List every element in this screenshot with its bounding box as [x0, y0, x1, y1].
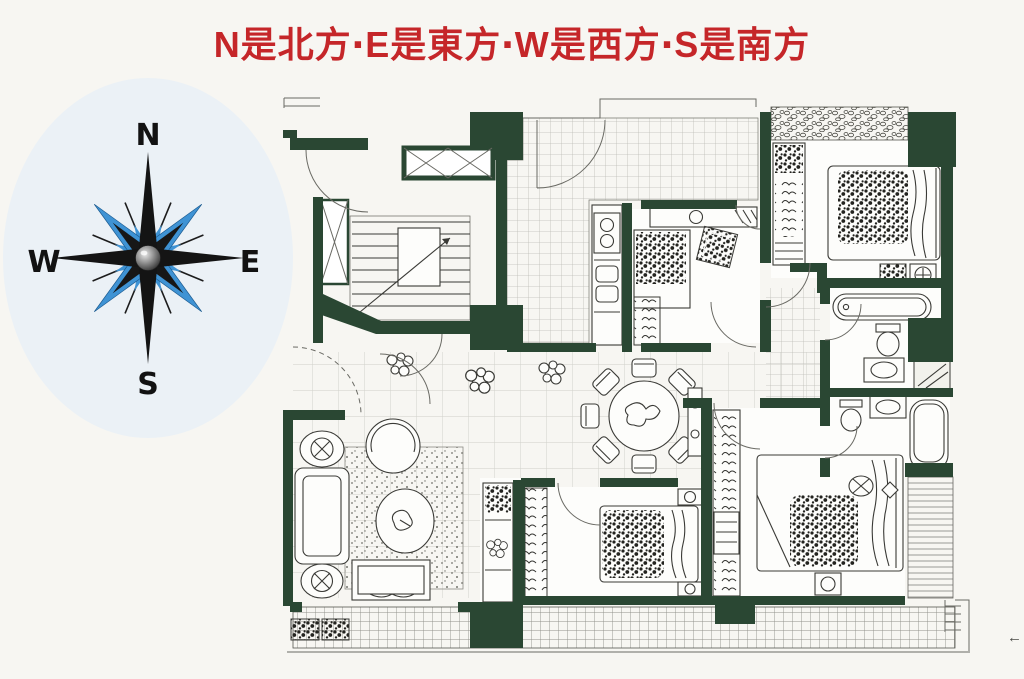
bed-blanket [790, 495, 858, 567]
wardrobe [634, 297, 660, 345]
stair-landing [398, 228, 440, 286]
hanger-rail [714, 412, 739, 510]
kitchen [592, 205, 622, 345]
compass-label-east: E [240, 245, 261, 280]
nightstand [815, 573, 841, 595]
compass-hub-highlight [141, 251, 148, 256]
coffee-table [376, 489, 434, 553]
toilet-tank [876, 324, 900, 332]
entry-closet [404, 148, 493, 178]
work-counter [650, 207, 757, 227]
plant-on-shelf [775, 145, 803, 173]
compass-label-south: S [137, 367, 159, 402]
compass-hub [136, 246, 161, 271]
bathtub-vertical [910, 400, 948, 470]
screenshot-root: { "title": { "text": "N是北方‧E是東方‧W是西方‧S是南… [0, 0, 1024, 679]
stairwell [321, 200, 470, 320]
balcony-bottom [293, 607, 955, 648]
flower-box [291, 619, 319, 640]
compass-rose: N S W E [3, 78, 293, 438]
flower-box [322, 619, 349, 640]
vanity [870, 396, 906, 418]
dining-table [609, 381, 679, 451]
toilet [877, 332, 899, 356]
floor-plan [283, 98, 970, 652]
balcony-right [908, 477, 953, 598]
scene: N S W E [0, 0, 1024, 679]
floor-cushion [696, 226, 737, 267]
bed-blanket [602, 510, 664, 578]
wardrobe-closet [525, 488, 547, 598]
bed-blanket [838, 170, 908, 244]
compass-label-north: N [135, 118, 160, 153]
toilet-tank [840, 400, 862, 407]
plant-on-cabinet [485, 485, 511, 513]
round-lounge-chair [366, 419, 420, 473]
hanger-rail [775, 177, 803, 237]
toilet [841, 409, 861, 431]
compass-label-west: W [27, 245, 60, 280]
balcony-top [771, 107, 908, 140]
